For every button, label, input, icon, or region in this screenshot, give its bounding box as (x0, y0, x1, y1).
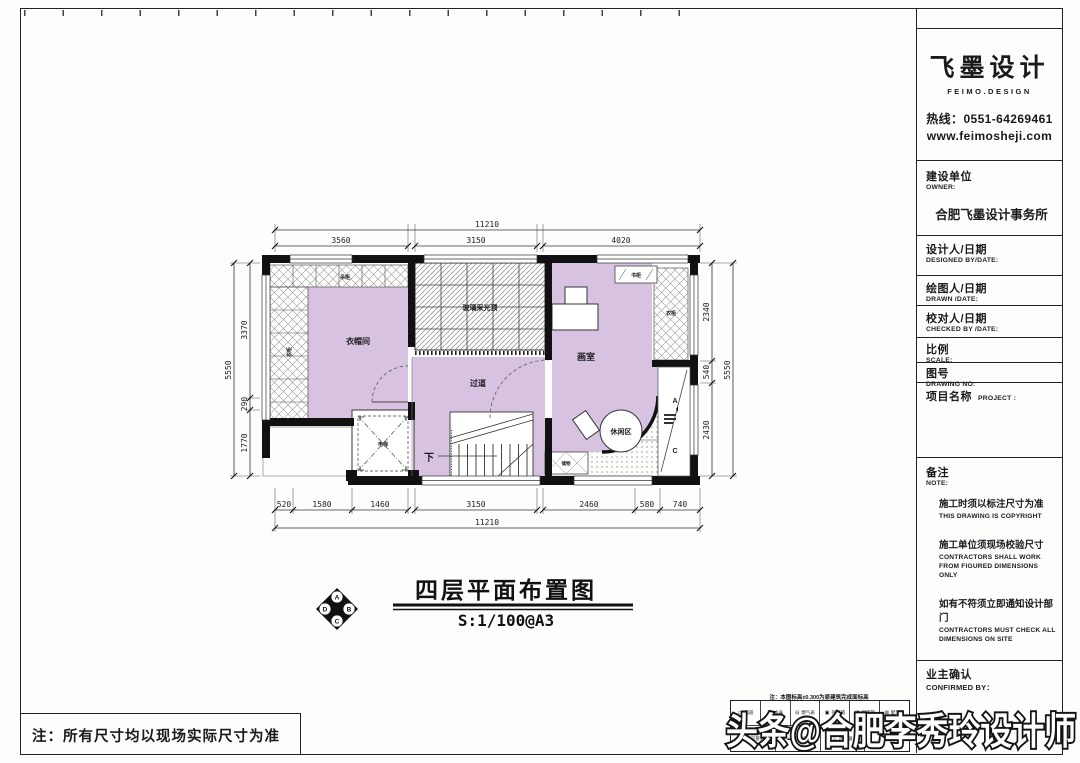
project-field: 项目名称 PROJECT : (926, 388, 1057, 404)
orientation-compass: A B C D (316, 588, 358, 630)
room-label-skylight: 玻璃采光顶 (463, 303, 498, 312)
section-mark-a: A (672, 398, 677, 405)
watermark-text: 头条@合肥李秀玲设计师 (726, 711, 1076, 752)
brand-sub: FEIMO.DESIGN (917, 87, 1062, 96)
floor-plan: 11210 3560 3150 4020 520 1580 1460 3150 … (210, 190, 800, 650)
scale-cn: 比例 (926, 341, 1057, 357)
dim-left-seg: 3370 (240, 320, 249, 339)
brand-section: 飞墨设计 FEIMO.DESIGN 热线：0551-64269461 www.f… (917, 48, 1062, 143)
drawing-scale: S:1/100@A3 (458, 611, 554, 630)
dim-right-total: 5550 (723, 360, 732, 379)
title-block: 飞墨设计 FEIMO.DESIGN 热线：0551-64269461 www.f… (916, 8, 1062, 753)
checked-en: CHECKED BY /DATE: (926, 326, 1057, 333)
dim-bottom-total: 11210 (475, 518, 499, 527)
scale-field: 比例 SCALE: (926, 341, 1057, 364)
dim-bottom-seg: 580 (640, 500, 655, 509)
room-label-leisure: 休闲区 (610, 427, 632, 436)
dim-bottom-seg: 1460 (370, 500, 389, 509)
brand-website: www.feimosheji.com (917, 129, 1062, 143)
dim-top-seg: 3560 (331, 236, 350, 245)
bottom-note-text: 注：所有尺寸均以现场实际尺寸为准 (32, 725, 300, 746)
checked-cn: 校对人/日期 (926, 310, 1057, 326)
staircase (438, 412, 533, 477)
brand-logo: 飞墨设计 (917, 48, 1062, 84)
dim-left-seg: 290 (240, 397, 249, 412)
compass-letter-c: C (335, 619, 340, 626)
note-section: 备注 NOTE: 施工时须以标注尺寸为准 THIS DRAWING IS COP… (926, 464, 1057, 644)
dim-right-seg: 540 (702, 365, 711, 380)
owner-section: 建设单位 OWNER: 合肥飞墨设计事务所 (926, 168, 1057, 223)
note-cn: 备注 (926, 464, 1057, 480)
stair-down-label: 下 (424, 452, 434, 464)
note-item-en: CONTRACTORS SHALL WORK FROM FIGURED DIME… (939, 553, 1057, 580)
section-mark-c: C (672, 448, 677, 455)
room-label-studio: 画室 (577, 351, 595, 362)
dim-bottom-seg: 520 (277, 500, 292, 509)
designed-en: DESIGNED BY/DATE: (926, 257, 1057, 264)
designed-field: 设计人/日期 DESIGNED BY/DATE: (926, 241, 1057, 264)
compass-letter-d: D (323, 607, 328, 614)
dim-bottom-seg: 3150 (466, 500, 485, 509)
section-annex (658, 367, 690, 476)
drawing-no-field: 图号 DRAWING NO: (926, 365, 1057, 388)
dim-left-total: 5550 (224, 360, 233, 379)
bookcase-label: 书柜 (631, 272, 641, 279)
drawing-no-cn: 图号 (926, 365, 1057, 381)
checked-field: 校对人/日期 CHECKED BY /DATE: (926, 310, 1057, 333)
dim-bottom-seg: 1580 (312, 500, 331, 509)
designed-cn: 设计人/日期 (926, 241, 1057, 257)
confirmed-cn: 业主确认 (926, 666, 1057, 682)
note-en: NOTE: (926, 480, 1057, 487)
dim-bottom-seg: 2460 (579, 500, 598, 509)
drawn-en: DRAWN /DATE: (926, 296, 1057, 303)
drawing-no-en: DRAWING NO: (926, 381, 1057, 388)
brand-hotline: 热线：0551-64269461 (917, 110, 1062, 127)
confirmed-field: 业主确认 CONFIRMED BY： (926, 666, 1057, 693)
owner-value: 合肥飞墨设计事务所 (926, 204, 1057, 223)
cabinet-label-right: 衣柜 (666, 310, 676, 317)
bottom-note-box: 注：所有尺寸均以现场实际尺寸为准 (20, 713, 301, 754)
note-item-en: CONTRACTORS MUST CHECK ALL DIMENSIONS ON… (939, 626, 1057, 644)
cabinet-label-top: 吊柜 (340, 274, 350, 281)
drawing-title: 四层平面布置图 (415, 577, 597, 603)
compass-letter-b: B (347, 607, 352, 614)
dim-right-seg: 2430 (702, 420, 711, 439)
cabinet-label-left: 衣柜 (286, 347, 293, 357)
note-item-cn: 施工单位须现场校验尺寸 (939, 537, 1057, 551)
dim-top-seg: 4020 (611, 236, 630, 245)
owner-label-cn: 建设单位 (926, 168, 1057, 184)
drawing-sheet: 11210 3560 3150 4020 520 1580 1460 3150 … (0, 0, 1080, 763)
drawing-title-group: A B C D 四层平面布置图 S:1/100@A3 (316, 577, 633, 630)
note-item: 施工时须以标注尺寸为准 THIS DRAWING IS COPYRIGHT (939, 496, 1057, 521)
note-item-cn: 如有不符须立即通知设计部门 (939, 596, 1057, 624)
compass-letter-a: A (335, 595, 340, 602)
room-label-corridor: 过道 (470, 378, 486, 388)
note-item-cn: 施工时须以标注尺寸为准 (939, 496, 1057, 510)
storage-label: 储物 (562, 460, 571, 467)
project-en: PROJECT : (978, 395, 1016, 402)
project-cn: 项目名称 (926, 388, 972, 404)
note-item: 施工单位须现场校验尺寸 CONTRACTORS SHALL WORK FROM … (939, 537, 1057, 580)
void-outline (263, 427, 352, 476)
room-label-cloakroom: 衣帽间 (346, 336, 370, 346)
confirmed-en: CONFIRMED BY： (926, 682, 1057, 693)
owner-label-en: OWNER: (926, 184, 1057, 191)
scale-en: SCALE: (926, 357, 1057, 364)
top-fold-ticks (24, 10, 700, 16)
dim-bottom-seg: 740 (673, 500, 688, 509)
note-item-en: THIS DRAWING IS COPYRIGHT (939, 512, 1057, 521)
room-label-elevator: 电梯 (378, 441, 388, 448)
dim-right-seg: 2340 (702, 302, 711, 321)
note-item: 如有不符须立即通知设计部门 CONTRACTORS MUST CHECK ALL… (939, 596, 1057, 644)
dim-top-seg: 3150 (466, 236, 485, 245)
watermark: 头条@合肥李秀玲设计师 (724, 699, 1080, 761)
drawn-field: 绘图人/日期 DRAWN /DATE: (926, 280, 1057, 303)
dim-left-seg: 1770 (240, 433, 249, 452)
dim-top-total: 11210 (475, 220, 499, 229)
drawn-cn: 绘图人/日期 (926, 280, 1057, 296)
